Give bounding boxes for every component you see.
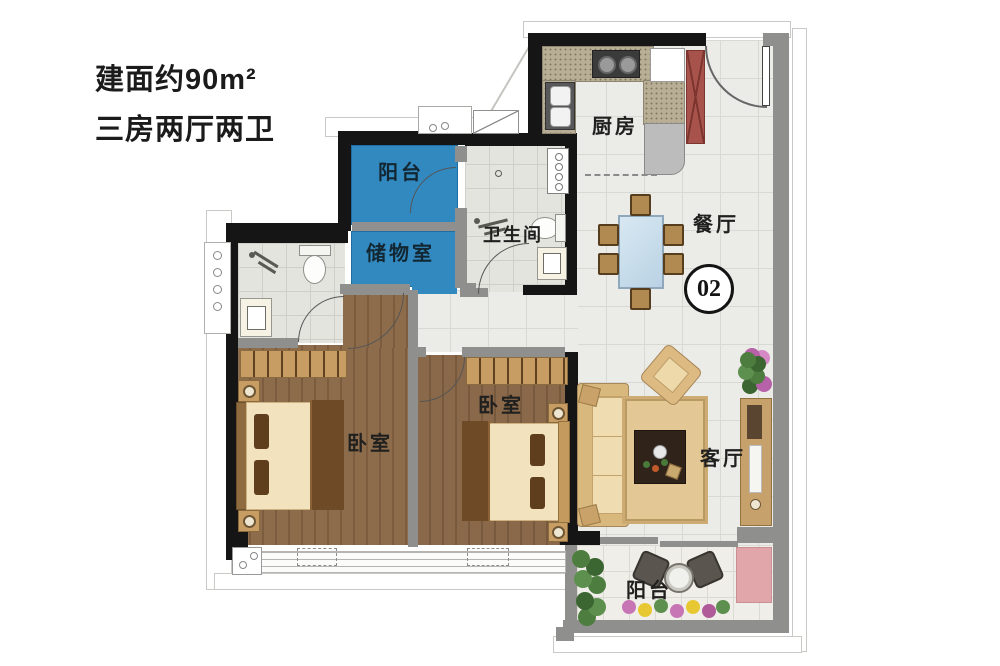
wall (455, 146, 467, 162)
dining-chair (598, 224, 619, 246)
sliding-door-rail (660, 541, 738, 547)
master-bedroom-label: 卧室 (347, 434, 393, 454)
dining-table (618, 215, 664, 289)
wall (226, 223, 348, 243)
burner-icon (619, 56, 637, 74)
wall (238, 338, 298, 348)
bed-blanket (462, 421, 490, 521)
balcony-top-label: 阳台 (378, 163, 424, 183)
armchair-cushion (653, 357, 690, 394)
wall (563, 620, 789, 633)
balcony-bottom-label: 阳台 (626, 581, 672, 601)
lamp-icon (552, 407, 565, 420)
sink-bowl-icon (550, 107, 571, 127)
wall (352, 222, 456, 231)
wall (528, 33, 542, 145)
lamp-icon (243, 385, 256, 398)
basin-icon (543, 253, 561, 274)
wall (465, 133, 577, 146)
sink-bowl-icon (550, 86, 571, 106)
storage-door-threshold (412, 284, 457, 294)
dining-chair (663, 253, 684, 275)
storage-label: 储物室 (366, 244, 435, 264)
wall (556, 627, 574, 641)
outline-right (792, 28, 807, 652)
ac-box (232, 547, 262, 575)
ac-unit-dashed (297, 548, 337, 566)
ac-platform (418, 106, 472, 134)
outline-steps (553, 636, 802, 653)
wall (773, 33, 789, 625)
wardrobe (466, 357, 568, 385)
wall (418, 347, 426, 357)
decor-dots-icon (643, 461, 650, 468)
corridor-floor (412, 290, 578, 352)
pipe-dot-icon (213, 251, 222, 260)
tv-screen-icon (749, 445, 762, 493)
dining-chair (663, 224, 684, 246)
wall (737, 527, 775, 543)
wardrobe (240, 350, 347, 378)
burner-icon (598, 56, 616, 74)
nightstand (238, 380, 260, 402)
bathroom-label: 卫生间 (483, 226, 543, 244)
sliding-door-rail (600, 537, 658, 544)
wall (763, 33, 775, 46)
nightstand (238, 510, 260, 532)
wall (408, 290, 418, 547)
kitchen-counter (643, 80, 685, 125)
toilet-tank-icon (555, 214, 566, 242)
floor-plan: 建面约90m² 三房两厅两卫 (0, 0, 1000, 666)
shower-head-icon (474, 218, 480, 224)
bedroom-window-band (246, 551, 566, 573)
kitchen-label: 厨房 (592, 117, 638, 137)
stove-icon (592, 50, 640, 78)
basin-icon (247, 306, 266, 330)
knob-dot-icon (555, 153, 563, 161)
faucet-icon (495, 170, 502, 177)
flower-bed-icon (622, 600, 636, 614)
toilet-icon (303, 255, 326, 284)
bed-headboard (558, 421, 570, 523)
bath-sink-icon (240, 298, 272, 337)
plant-icon (572, 550, 590, 568)
bath-shelf (547, 148, 569, 194)
pipe-dot-icon (441, 122, 449, 130)
dining-chair (598, 253, 619, 275)
pillow (530, 434, 545, 466)
pipe-shaft (204, 242, 231, 334)
dining-label: 餐厅 (693, 215, 739, 235)
pipe-dot-icon (429, 124, 437, 132)
pipe-dot-icon (250, 552, 258, 560)
unit-number-badge: 02 (684, 264, 734, 314)
fridge-cabinet (686, 50, 705, 144)
dining-chair (630, 194, 651, 216)
lamp-icon (552, 526, 565, 539)
pipe-dot-icon (239, 561, 247, 569)
plate-icon (653, 445, 667, 459)
plant-icon (740, 352, 756, 368)
shower-head-icon (249, 252, 255, 258)
bath-sink-icon (537, 247, 567, 280)
layout-title: 三房两厅两卫 (95, 106, 275, 148)
lamp-icon (243, 515, 256, 528)
nightstand (548, 522, 568, 542)
wall (462, 347, 565, 357)
coffee-table (634, 430, 686, 484)
wall (523, 285, 577, 295)
decor-icon (750, 499, 761, 510)
balcony-mat (736, 547, 772, 603)
pillow (254, 460, 269, 495)
bed-blanket (310, 400, 344, 510)
second-bedroom-label: 卧室 (478, 396, 524, 416)
kitchen-sink-icon (545, 82, 575, 130)
tv-icon (747, 405, 762, 439)
living-label: 客厅 (700, 449, 746, 469)
wall (338, 131, 351, 231)
unit-number: 02 (697, 276, 721, 303)
sofa-seat (592, 396, 624, 514)
book-icon (665, 463, 682, 480)
nightstand (548, 403, 568, 423)
pillow (254, 414, 269, 449)
pillow (530, 477, 545, 509)
outline-bottom (214, 573, 574, 590)
counter-board (650, 48, 685, 82)
wall (455, 208, 467, 288)
wall (528, 33, 706, 46)
kitchen-appliance (644, 123, 685, 175)
ac-unit-dashed (467, 548, 509, 566)
dining-chair (630, 288, 651, 310)
kitchen-boundary-dashed (585, 174, 657, 176)
area-title: 建面约90m² (95, 56, 257, 98)
entry-door-leaf (762, 46, 770, 106)
shoe-cabinet (473, 110, 519, 134)
